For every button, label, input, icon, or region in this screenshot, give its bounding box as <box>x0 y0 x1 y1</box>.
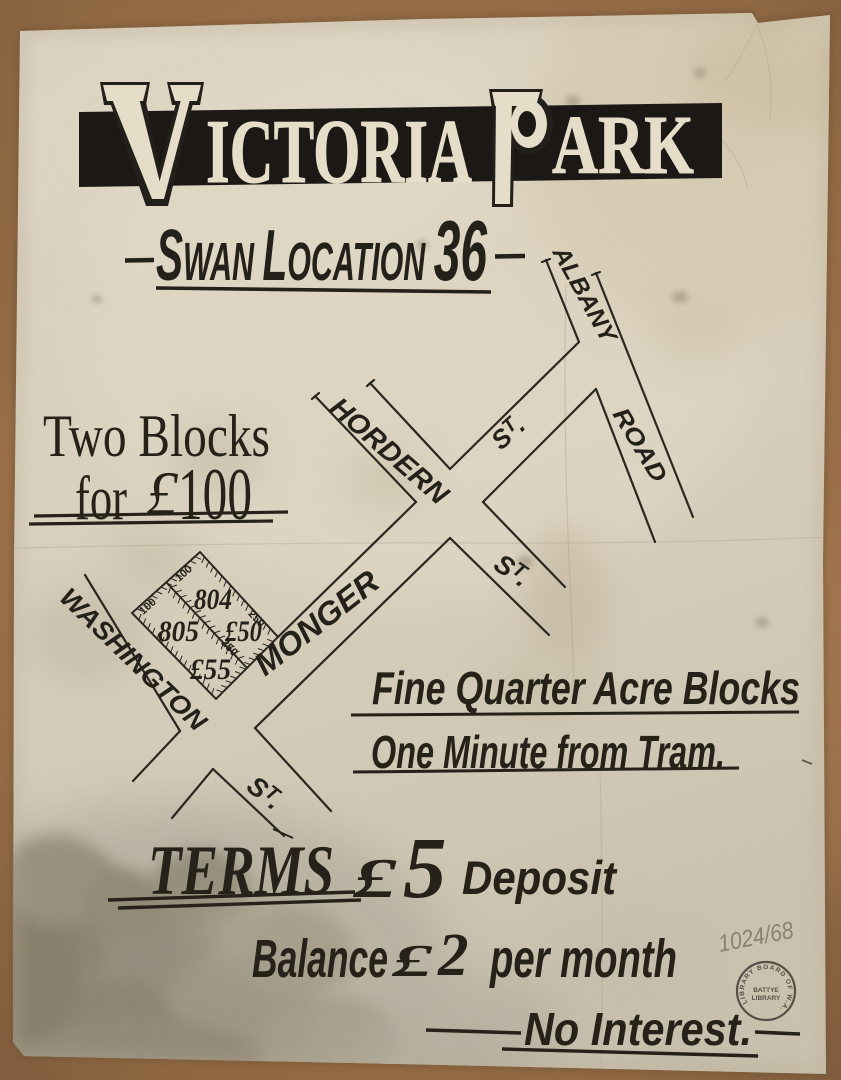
svg-text:BATTYE: BATTYE <box>753 987 779 994</box>
svg-text:Deposit: Deposit <box>462 851 618 904</box>
svg-text:805: 805 <box>158 615 199 648</box>
svg-text:£55: £55 <box>189 653 231 686</box>
svg-text:100: 100 <box>178 454 252 536</box>
svg-text:£: £ <box>352 847 397 909</box>
svg-text:804: 804 <box>194 583 232 616</box>
svg-text:ICTORIA: ICTORIA <box>206 101 472 202</box>
svg-text:Fine Quarter Acre Blocks: Fine Quarter Acre Blocks <box>372 662 800 714</box>
svg-text:ARK: ARK <box>552 99 694 192</box>
svg-text:£: £ <box>391 936 433 987</box>
svg-text:No Interest.: No Interest. <box>524 1003 752 1055</box>
svg-text:per month: per month <box>489 929 677 989</box>
svg-text:LIBRARY: LIBRARY <box>752 995 781 1002</box>
svg-text:5: 5 <box>403 819 447 916</box>
svg-text:Balance: Balance <box>252 929 388 989</box>
svg-text:£: £ <box>146 458 179 529</box>
svg-text:2: 2 <box>437 922 469 989</box>
